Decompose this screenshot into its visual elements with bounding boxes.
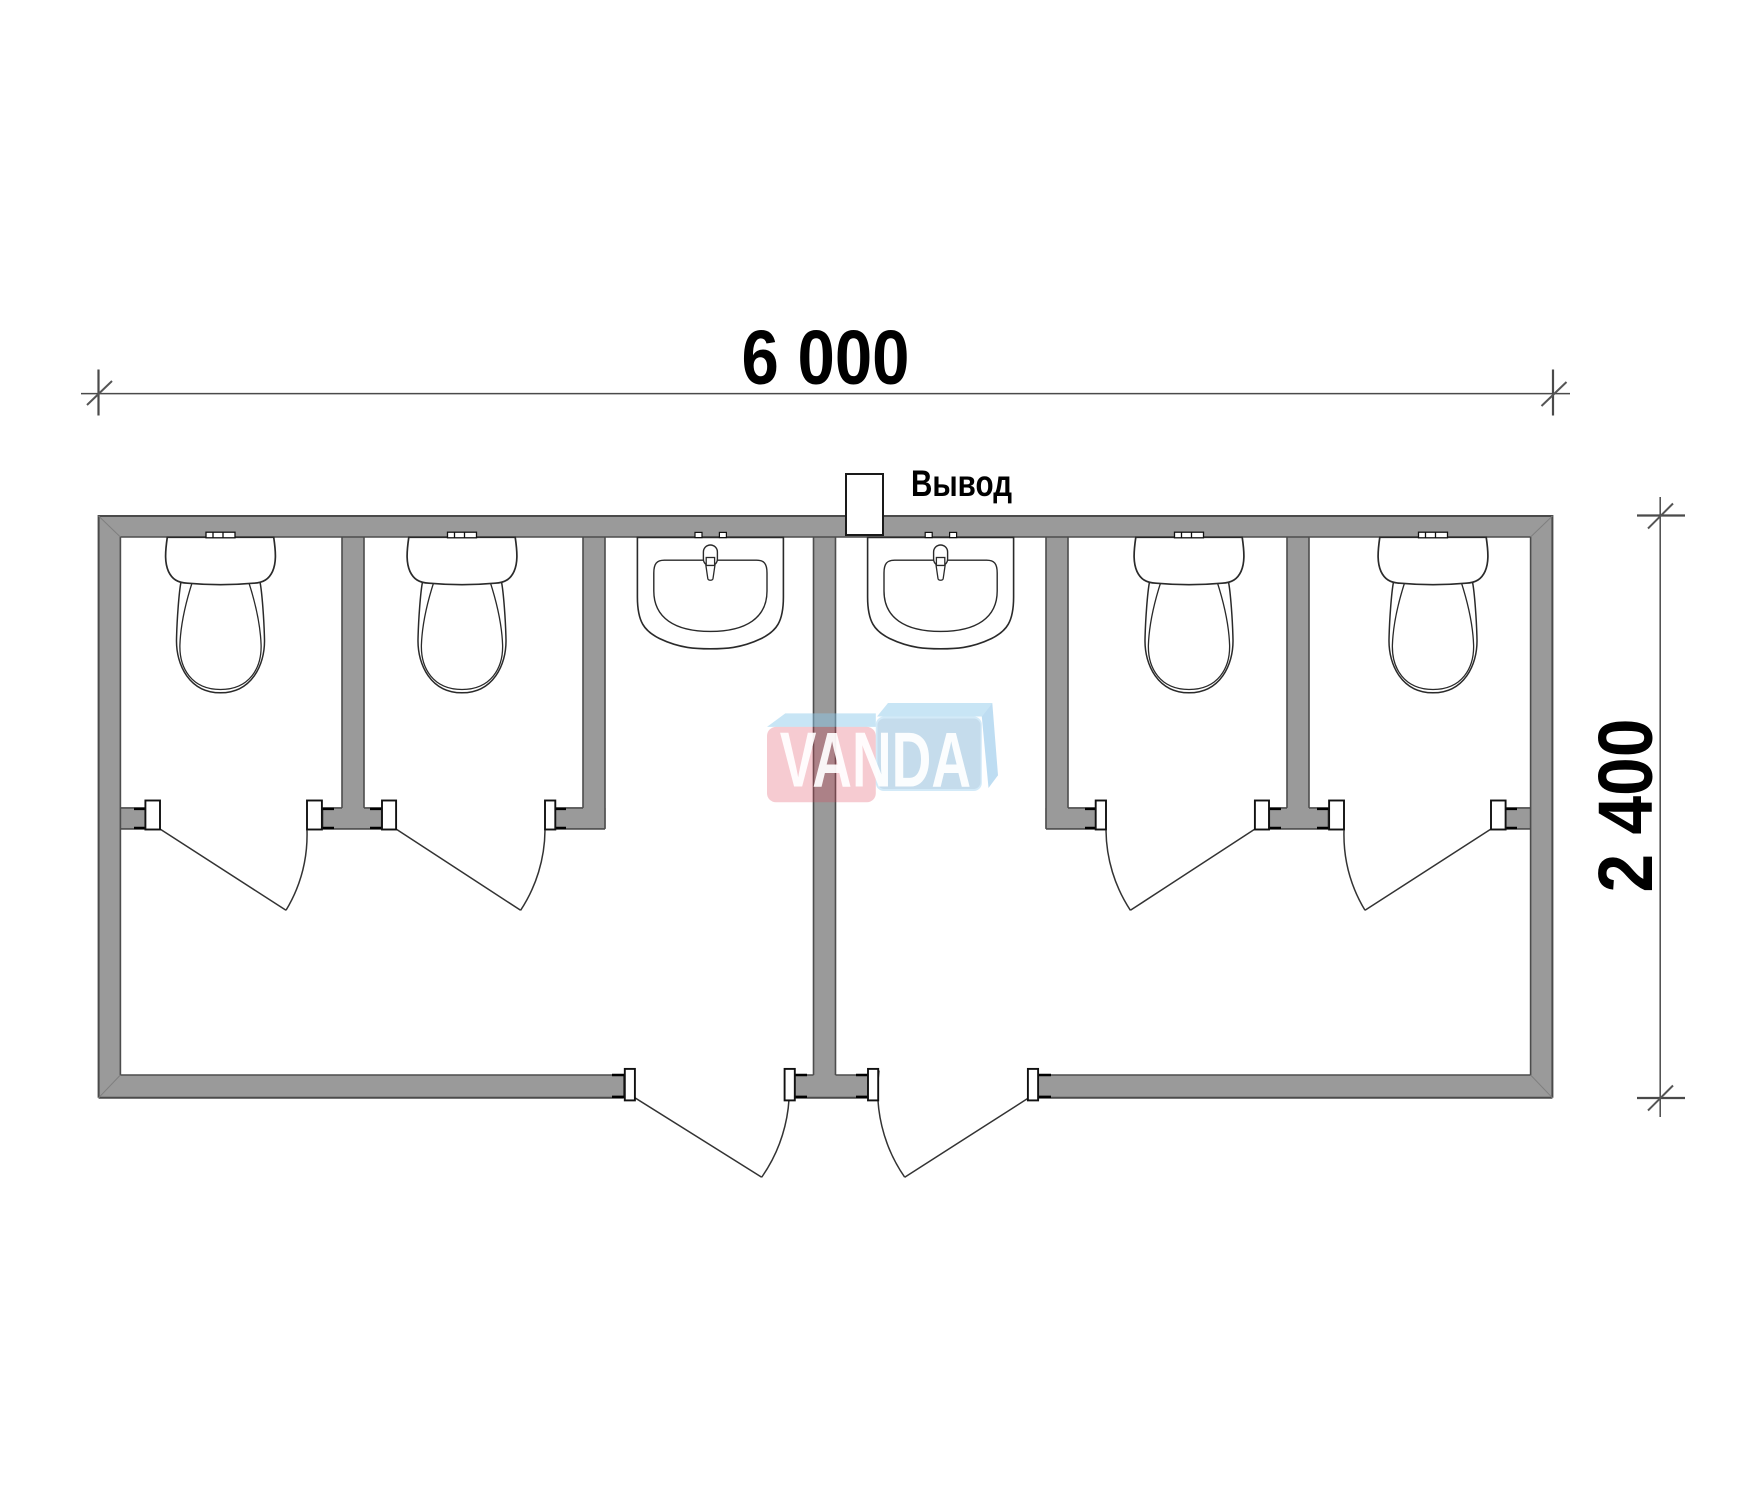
svg-text:2 400: 2 400 xyxy=(1583,719,1669,893)
svg-text:Вывод: Вывод xyxy=(911,463,1012,504)
svg-text:6 000: 6 000 xyxy=(742,315,910,401)
svg-text:VANDA: VANDA xyxy=(780,716,971,804)
